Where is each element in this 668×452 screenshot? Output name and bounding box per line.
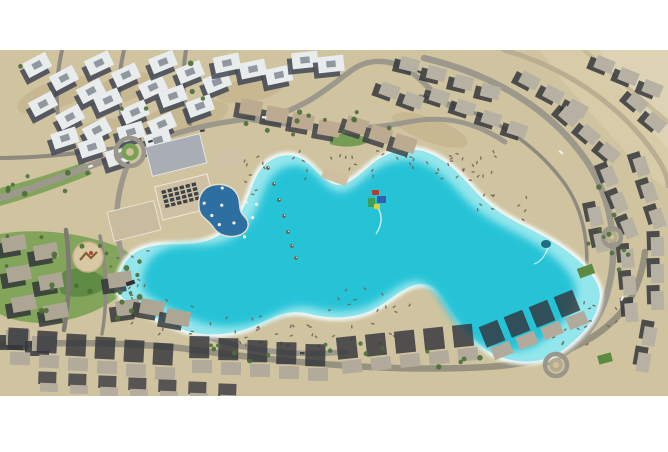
car	[262, 116, 267, 119]
tree	[265, 128, 270, 133]
tree	[436, 364, 441, 369]
tree	[212, 347, 217, 352]
building-roof	[250, 364, 270, 377]
tree	[425, 349, 429, 353]
tree	[5, 264, 9, 268]
tree	[79, 244, 84, 249]
tree	[87, 289, 92, 294]
aqua-park-inflatable	[368, 198, 375, 207]
building-roof	[651, 264, 665, 283]
building-shadow	[7, 328, 28, 351]
shore-umbrella-top	[274, 183, 275, 184]
beach-lounger	[348, 304, 351, 306]
tree	[26, 174, 30, 178]
building-shadow	[158, 379, 176, 392]
building-roof	[70, 385, 88, 395]
tree	[598, 227, 602, 231]
building-roof	[221, 362, 241, 375]
tree	[244, 121, 249, 126]
building-roof	[130, 389, 148, 396]
building-shadow	[65, 334, 86, 357]
tree	[11, 183, 15, 187]
pool-umbrella	[218, 223, 221, 226]
building-shadow	[152, 343, 173, 366]
beach-lounger	[146, 250, 149, 251]
building-shadow	[218, 383, 236, 396]
beach-lounger	[351, 325, 352, 328]
beach-lounger	[275, 333, 278, 335]
tree	[5, 188, 10, 193]
beach-lounger	[450, 160, 453, 161]
beach-lounger	[345, 156, 346, 159]
tree	[216, 344, 220, 348]
tree	[50, 287, 54, 291]
building-shadow	[218, 338, 238, 360]
tree	[135, 273, 139, 277]
building-roof	[126, 363, 147, 377]
tree	[119, 299, 124, 304]
tree	[358, 341, 362, 345]
building-roof	[651, 237, 665, 256]
roundabout-center	[126, 148, 134, 156]
bottom-white-margin	[0, 396, 668, 452]
tree	[98, 244, 102, 248]
shore-umbrella	[282, 214, 286, 218]
shore-umbrella	[266, 166, 270, 170]
tree	[364, 351, 369, 356]
building-roof	[341, 359, 362, 374]
building-roof	[624, 302, 639, 322]
listing-photo-page	[0, 0, 668, 452]
tree	[355, 110, 359, 114]
pool-umbrella	[245, 201, 248, 204]
building-shadow	[394, 330, 416, 354]
roundabout-center	[553, 362, 559, 368]
tree	[266, 353, 271, 358]
tree	[606, 232, 611, 237]
pool-umbrella	[221, 186, 224, 189]
roof-detail	[326, 60, 336, 67]
pool-umbrella	[243, 235, 246, 238]
aerial-photo	[0, 50, 668, 396]
building-shadow	[98, 375, 116, 388]
building-shadow	[423, 327, 445, 351]
tree	[188, 60, 194, 66]
beach-lounger	[376, 150, 379, 151]
building-roof	[308, 368, 328, 381]
aerial-photo-svg	[0, 50, 668, 396]
building-shadow	[36, 331, 57, 354]
building-shadow	[128, 377, 146, 390]
beach-lounger	[372, 175, 373, 178]
beach-lounger	[353, 299, 356, 301]
tree	[626, 252, 630, 256]
beach-lounger	[480, 156, 482, 159]
building-shadow	[276, 342, 296, 364]
tree	[49, 282, 54, 287]
tree	[323, 118, 327, 122]
shore-umbrella	[290, 244, 294, 248]
building-roof	[651, 291, 665, 310]
pool-umbrella	[251, 216, 254, 219]
building-shadow	[189, 336, 209, 358]
tree	[63, 189, 68, 194]
building-roof	[620, 248, 635, 268]
tree	[387, 126, 392, 131]
shore-umbrella-top	[288, 231, 289, 232]
tree	[129, 291, 133, 295]
tree	[39, 235, 43, 239]
beach-lounger	[482, 174, 483, 177]
shore-umbrella-top	[296, 257, 297, 258]
floating-platform	[541, 240, 551, 248]
tree	[129, 308, 134, 313]
building-shadow	[305, 344, 325, 366]
tree	[190, 89, 195, 94]
beach-lounger	[306, 169, 307, 172]
tree	[232, 350, 237, 355]
building-shadow	[123, 340, 144, 363]
tree	[324, 343, 328, 347]
building-shadow	[38, 371, 56, 384]
pool-umbrella	[255, 203, 258, 206]
roof-detail	[300, 56, 310, 63]
aqua-park-inflatable	[377, 196, 386, 203]
tree	[596, 184, 601, 189]
building-shadow	[452, 324, 474, 348]
building-shadow	[336, 336, 358, 360]
shore-umbrella	[294, 256, 298, 260]
playground-slide	[89, 251, 93, 255]
building-roof	[40, 383, 58, 393]
tree	[586, 242, 590, 246]
aqua-park-inflatable	[372, 190, 379, 195]
tree	[52, 255, 56, 259]
tree	[602, 235, 606, 239]
tree	[118, 290, 123, 295]
building-roof	[399, 353, 420, 368]
aqua-park-inflatable	[374, 204, 380, 209]
beach-lounger	[455, 153, 458, 155]
building-roof	[428, 350, 449, 365]
pool-umbrella	[232, 221, 235, 224]
tree	[462, 357, 467, 362]
building-shadow	[68, 373, 86, 386]
building-roof	[192, 360, 212, 373]
building-roof	[68, 357, 89, 371]
tree	[124, 265, 130, 271]
building-roof	[279, 366, 299, 379]
building-roof	[10, 351, 31, 365]
beach-lounger	[491, 171, 493, 174]
tree	[144, 106, 149, 111]
beach-lounger	[471, 171, 474, 173]
pool-umbrella	[210, 214, 213, 217]
shore-umbrella-top	[268, 167, 269, 168]
shore-umbrella	[272, 182, 276, 186]
tree	[105, 252, 109, 256]
building-roof	[370, 356, 391, 371]
shore-umbrella	[277, 198, 281, 202]
building-shadow	[94, 337, 115, 360]
aerial-scene	[0, 50, 668, 396]
tree	[297, 109, 302, 114]
tree	[291, 133, 295, 137]
top-white-margin	[0, 0, 668, 50]
tree	[617, 267, 622, 272]
tree	[74, 283, 79, 288]
building-shadow	[188, 381, 206, 394]
tree	[610, 251, 615, 256]
tree	[294, 118, 299, 123]
tree	[306, 113, 311, 118]
tree	[43, 308, 48, 313]
tree	[18, 64, 23, 69]
tree	[137, 259, 142, 264]
shore-umbrella-top	[292, 245, 293, 246]
tree	[6, 234, 10, 238]
tree	[115, 315, 120, 320]
building-roof	[100, 387, 118, 396]
tree	[120, 107, 124, 111]
building-roof	[622, 275, 637, 295]
shore-umbrella-top	[284, 215, 285, 216]
tree	[622, 248, 626, 252]
shore-umbrella-top	[279, 199, 280, 200]
tree	[137, 294, 143, 300]
pool-umbrella	[220, 204, 223, 207]
tree	[248, 359, 253, 364]
beach-lounger	[309, 326, 312, 327]
pool-umbrella	[203, 202, 206, 205]
tree	[85, 171, 90, 176]
tree	[381, 346, 385, 350]
tree	[201, 96, 205, 100]
building-roof	[39, 354, 60, 368]
tree	[351, 117, 356, 122]
shore-umbrella	[286, 230, 290, 234]
tree	[342, 129, 346, 133]
tree	[38, 308, 44, 314]
tree	[65, 170, 71, 176]
tree	[477, 355, 483, 361]
tree	[22, 191, 28, 197]
tree	[209, 343, 213, 347]
tree	[612, 212, 617, 217]
building-roof	[155, 366, 176, 380]
car	[300, 352, 305, 354]
tree	[328, 348, 333, 353]
building-roof	[97, 360, 118, 374]
beach-lounger	[234, 330, 236, 333]
